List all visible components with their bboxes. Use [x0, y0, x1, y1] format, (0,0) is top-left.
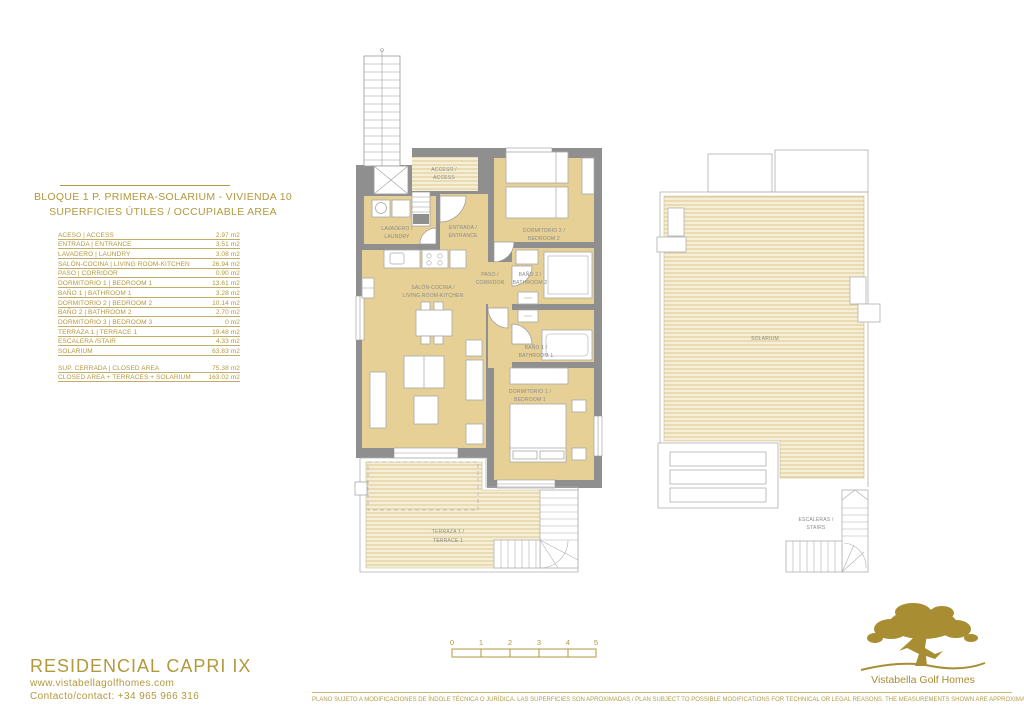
- toilet: [516, 250, 538, 264]
- nightstand: [572, 400, 586, 412]
- planter: [668, 208, 684, 236]
- planter: [850, 277, 866, 304]
- svg-text:BEDROOM 1: BEDROOM 1: [514, 397, 546, 403]
- brand-name: Vistabella Golf Homes: [843, 674, 1003, 686]
- kitchen-hob: [422, 250, 448, 268]
- dryer: [392, 200, 410, 217]
- label-acceso: ACCESO /: [431, 167, 457, 173]
- pillow: [513, 451, 537, 459]
- label-terraza: TERRAZA 1 /: [432, 529, 465, 535]
- wardrobe: [582, 158, 594, 194]
- svg-text:ENTRANCE: ENTRANCE: [448, 233, 478, 239]
- acceso-deck: [412, 157, 478, 191]
- solarium-plan: SOLARIUM ESCALERAS / STAIRS: [657, 150, 880, 572]
- label-solarium: SOLARIUM: [751, 336, 779, 342]
- scale-bar: 0 1 2 3 4 5: [450, 638, 598, 657]
- svg-text:CORRIDOR: CORRIDOR: [476, 280, 505, 286]
- svg-text:1: 1: [479, 638, 483, 647]
- svg-text:BATHROOM 2: BATHROOM 2: [513, 280, 548, 286]
- svg-text:TERRACE 1: TERRACE 1: [433, 538, 463, 544]
- website-url: www.vistabellagolfhomes.com: [30, 678, 174, 689]
- entry-steps: [412, 192, 430, 226]
- bed: [506, 187, 568, 218]
- svg-text:LAUNDRY: LAUNDRY: [384, 234, 410, 240]
- label-dormitorio2: DORMITORIO 2 /: [523, 228, 566, 234]
- footer-divider: [312, 692, 1012, 693]
- closet: [510, 368, 568, 384]
- bed: [506, 152, 568, 183]
- armchair: [466, 424, 483, 444]
- svg-text:3: 3: [537, 638, 541, 647]
- contact-phone: Contacto/contact: +34 965 966 316: [30, 691, 199, 702]
- pillow: [540, 451, 564, 459]
- legal-disclaimer: PLANO SUJETO A MODIFICACIONES DE ÍNDOLE …: [312, 697, 1018, 703]
- shower: [544, 252, 592, 298]
- planter: [858, 304, 880, 322]
- nightstand: [572, 448, 586, 460]
- floorplan-svg: ACCESO / ACCESS LAVADERO / LAUNDRY ENTRA…: [0, 0, 1024, 724]
- svg-text:BEDROOM 2: BEDROOM 2: [528, 236, 560, 242]
- solarium-stairs: [786, 490, 868, 572]
- chair: [434, 302, 443, 310]
- svg-text:STAIRS: STAIRS: [807, 525, 826, 531]
- dining-table: [416, 310, 452, 336]
- coffee-table: [414, 396, 438, 424]
- tv-unit: [370, 372, 386, 428]
- svg-text:2: 2: [508, 638, 512, 647]
- roof-opening: [708, 154, 772, 192]
- label-salon: SALÓN-COCINA /: [411, 284, 455, 291]
- svg-text:5: 5: [594, 638, 598, 647]
- armchair: [466, 340, 482, 356]
- label-paso: PASO /: [481, 272, 499, 278]
- label-entrada: ENTRADA /: [449, 225, 478, 231]
- label-bano1: BAÑO 1 /: [525, 344, 548, 351]
- svg-text:ACCESS: ACCESS: [433, 175, 455, 181]
- chair: [434, 336, 443, 344]
- label-dormitorio1: DORMITORIO 1 /: [509, 389, 552, 395]
- kitchen-unit: [450, 250, 466, 268]
- chair: [421, 302, 430, 310]
- residence-name: RESIDENCIAL CAPRI IX: [30, 656, 251, 677]
- terrace-pillar: [355, 482, 367, 495]
- brand-logo-tree-icon: [861, 603, 985, 670]
- svg-text:LIVING ROOM-KITCHEN: LIVING ROOM-KITCHEN: [403, 293, 464, 299]
- pergola: [658, 443, 778, 508]
- svg-text:BATHROOM 1: BATHROOM 1: [519, 353, 554, 359]
- svg-text:0: 0: [450, 638, 454, 647]
- main-apartment-plan: ACCESO / ACCESS LAVADERO / LAUNDRY ENTRA…: [355, 49, 602, 573]
- planter: [657, 237, 686, 252]
- roof-opening: [775, 150, 868, 192]
- exterior-stair-top: [364, 49, 400, 167]
- floorplan-sheet: BLOQUE 1 P. PRIMERA-SOLARIUM - VIVIENDA …: [0, 0, 1024, 724]
- label-bano2: BAÑO 2 /: [519, 271, 542, 278]
- chair: [421, 336, 430, 344]
- entry-landing-hatch: [374, 166, 408, 194]
- svg-text:4: 4: [566, 638, 570, 647]
- label-escaleras: ESCALERAS /: [799, 517, 834, 523]
- armchair: [466, 360, 483, 400]
- label-lavadero: LAVADERO /: [381, 226, 413, 232]
